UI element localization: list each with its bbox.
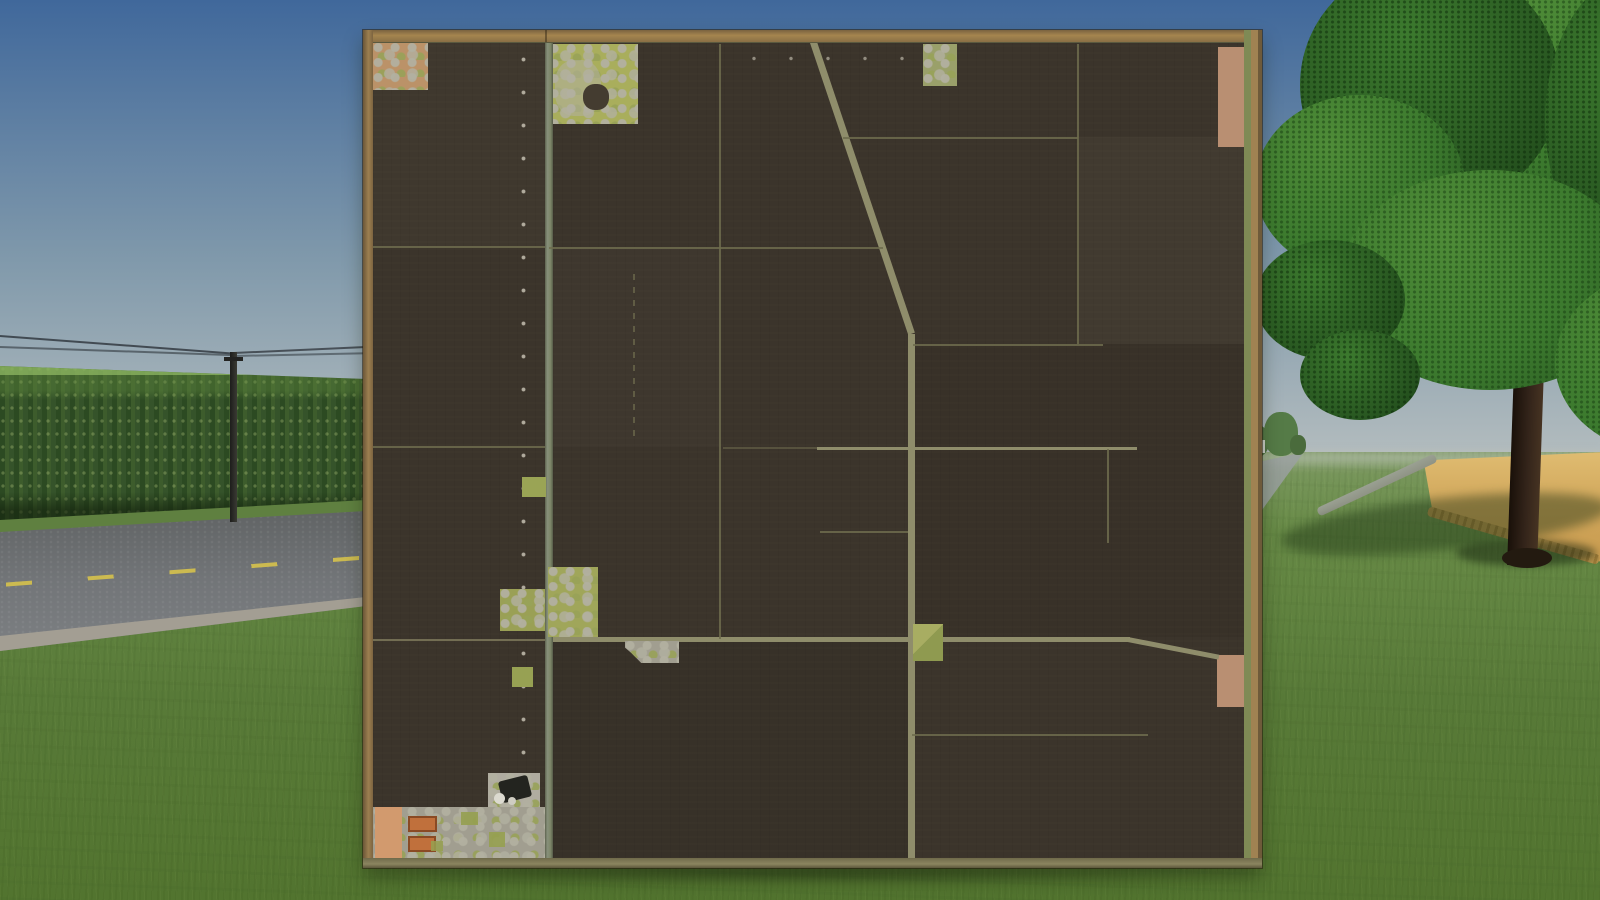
field-line	[1077, 44, 1079, 344]
field-line	[719, 44, 721, 639]
board-frame-top	[363, 30, 1262, 42]
map-road-horizontal-mid	[817, 447, 1137, 450]
field-line	[373, 446, 545, 448]
green-patch-roadside-left	[500, 589, 545, 631]
map-patch-tan-topright	[1218, 47, 1244, 147]
field-line	[843, 137, 1078, 139]
farm-yard-peach-lot	[375, 807, 402, 859]
map-patch-tan-topleft	[373, 43, 428, 90]
top-dot-markers	[751, 56, 911, 61]
farm-green-patch	[489, 832, 505, 847]
green-patch-small	[512, 667, 533, 687]
map-road-vertical-main	[545, 43, 553, 859]
farm-green-patch	[461, 812, 478, 825]
green-patch-roadside-right	[548, 567, 598, 637]
farm-green-patch	[431, 841, 443, 851]
map-road-vertical-2	[908, 334, 915, 859]
farm-yard	[373, 807, 545, 859]
map-patch-tan-bottomright	[1217, 655, 1244, 707]
game-scene	[0, 0, 1600, 900]
tree-row-line	[633, 274, 635, 440]
vehicle-pad	[488, 773, 540, 811]
tractor-wheel-icon	[494, 793, 505, 804]
streetlight-dot-markers	[521, 57, 526, 815]
corn-field	[0, 366, 366, 522]
board-frame-seam	[545, 30, 547, 42]
field-line	[549, 247, 883, 249]
field-line	[723, 447, 817, 449]
building-roof-1	[408, 816, 437, 832]
distant-tree-3	[1290, 435, 1306, 455]
map-noise	[373, 43, 1244, 859]
board-frame-left	[363, 30, 373, 868]
pond-marker	[583, 84, 609, 110]
field-line	[373, 246, 545, 248]
field-line	[912, 734, 1148, 736]
field-line	[820, 531, 908, 533]
utility-pole-crossarm	[224, 357, 243, 361]
field-map-board[interactable]	[363, 30, 1262, 868]
utility-pole	[230, 352, 237, 522]
map-surface	[373, 42, 1244, 859]
field-line	[373, 639, 545, 641]
board-frame-bottom	[363, 858, 1262, 868]
field-line	[1107, 449, 1109, 543]
green-patch-junction	[913, 624, 943, 661]
green-patch-mid	[522, 477, 546, 497]
map-small-patch-top	[923, 44, 957, 86]
map-farmstead-patch	[549, 44, 638, 124]
tree-foliage-8	[1300, 330, 1420, 420]
tractor-wheel-icon	[508, 797, 516, 805]
board-frame-right	[1244, 30, 1262, 868]
field-line	[913, 344, 1103, 346]
tree-trunk-base	[1502, 548, 1552, 568]
